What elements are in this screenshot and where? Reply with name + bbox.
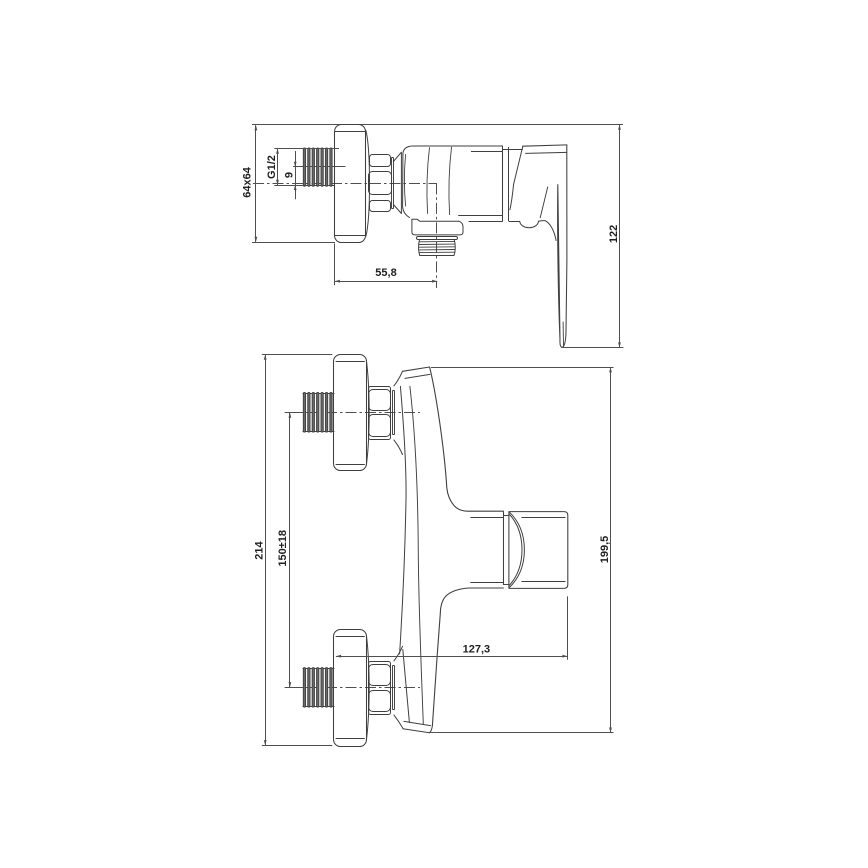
svg-text:55,8: 55,8 — [375, 267, 396, 279]
svg-text:127,3: 127,3 — [463, 643, 491, 655]
svg-text:214: 214 — [254, 540, 266, 559]
svg-text:64x64: 64x64 — [242, 166, 254, 197]
svg-text:9: 9 — [283, 172, 295, 178]
svg-text:G1/2: G1/2 — [266, 155, 278, 179]
svg-text:199,5: 199,5 — [599, 536, 611, 564]
svg-text:150±18: 150±18 — [277, 530, 289, 567]
svg-text:122: 122 — [608, 225, 620, 243]
